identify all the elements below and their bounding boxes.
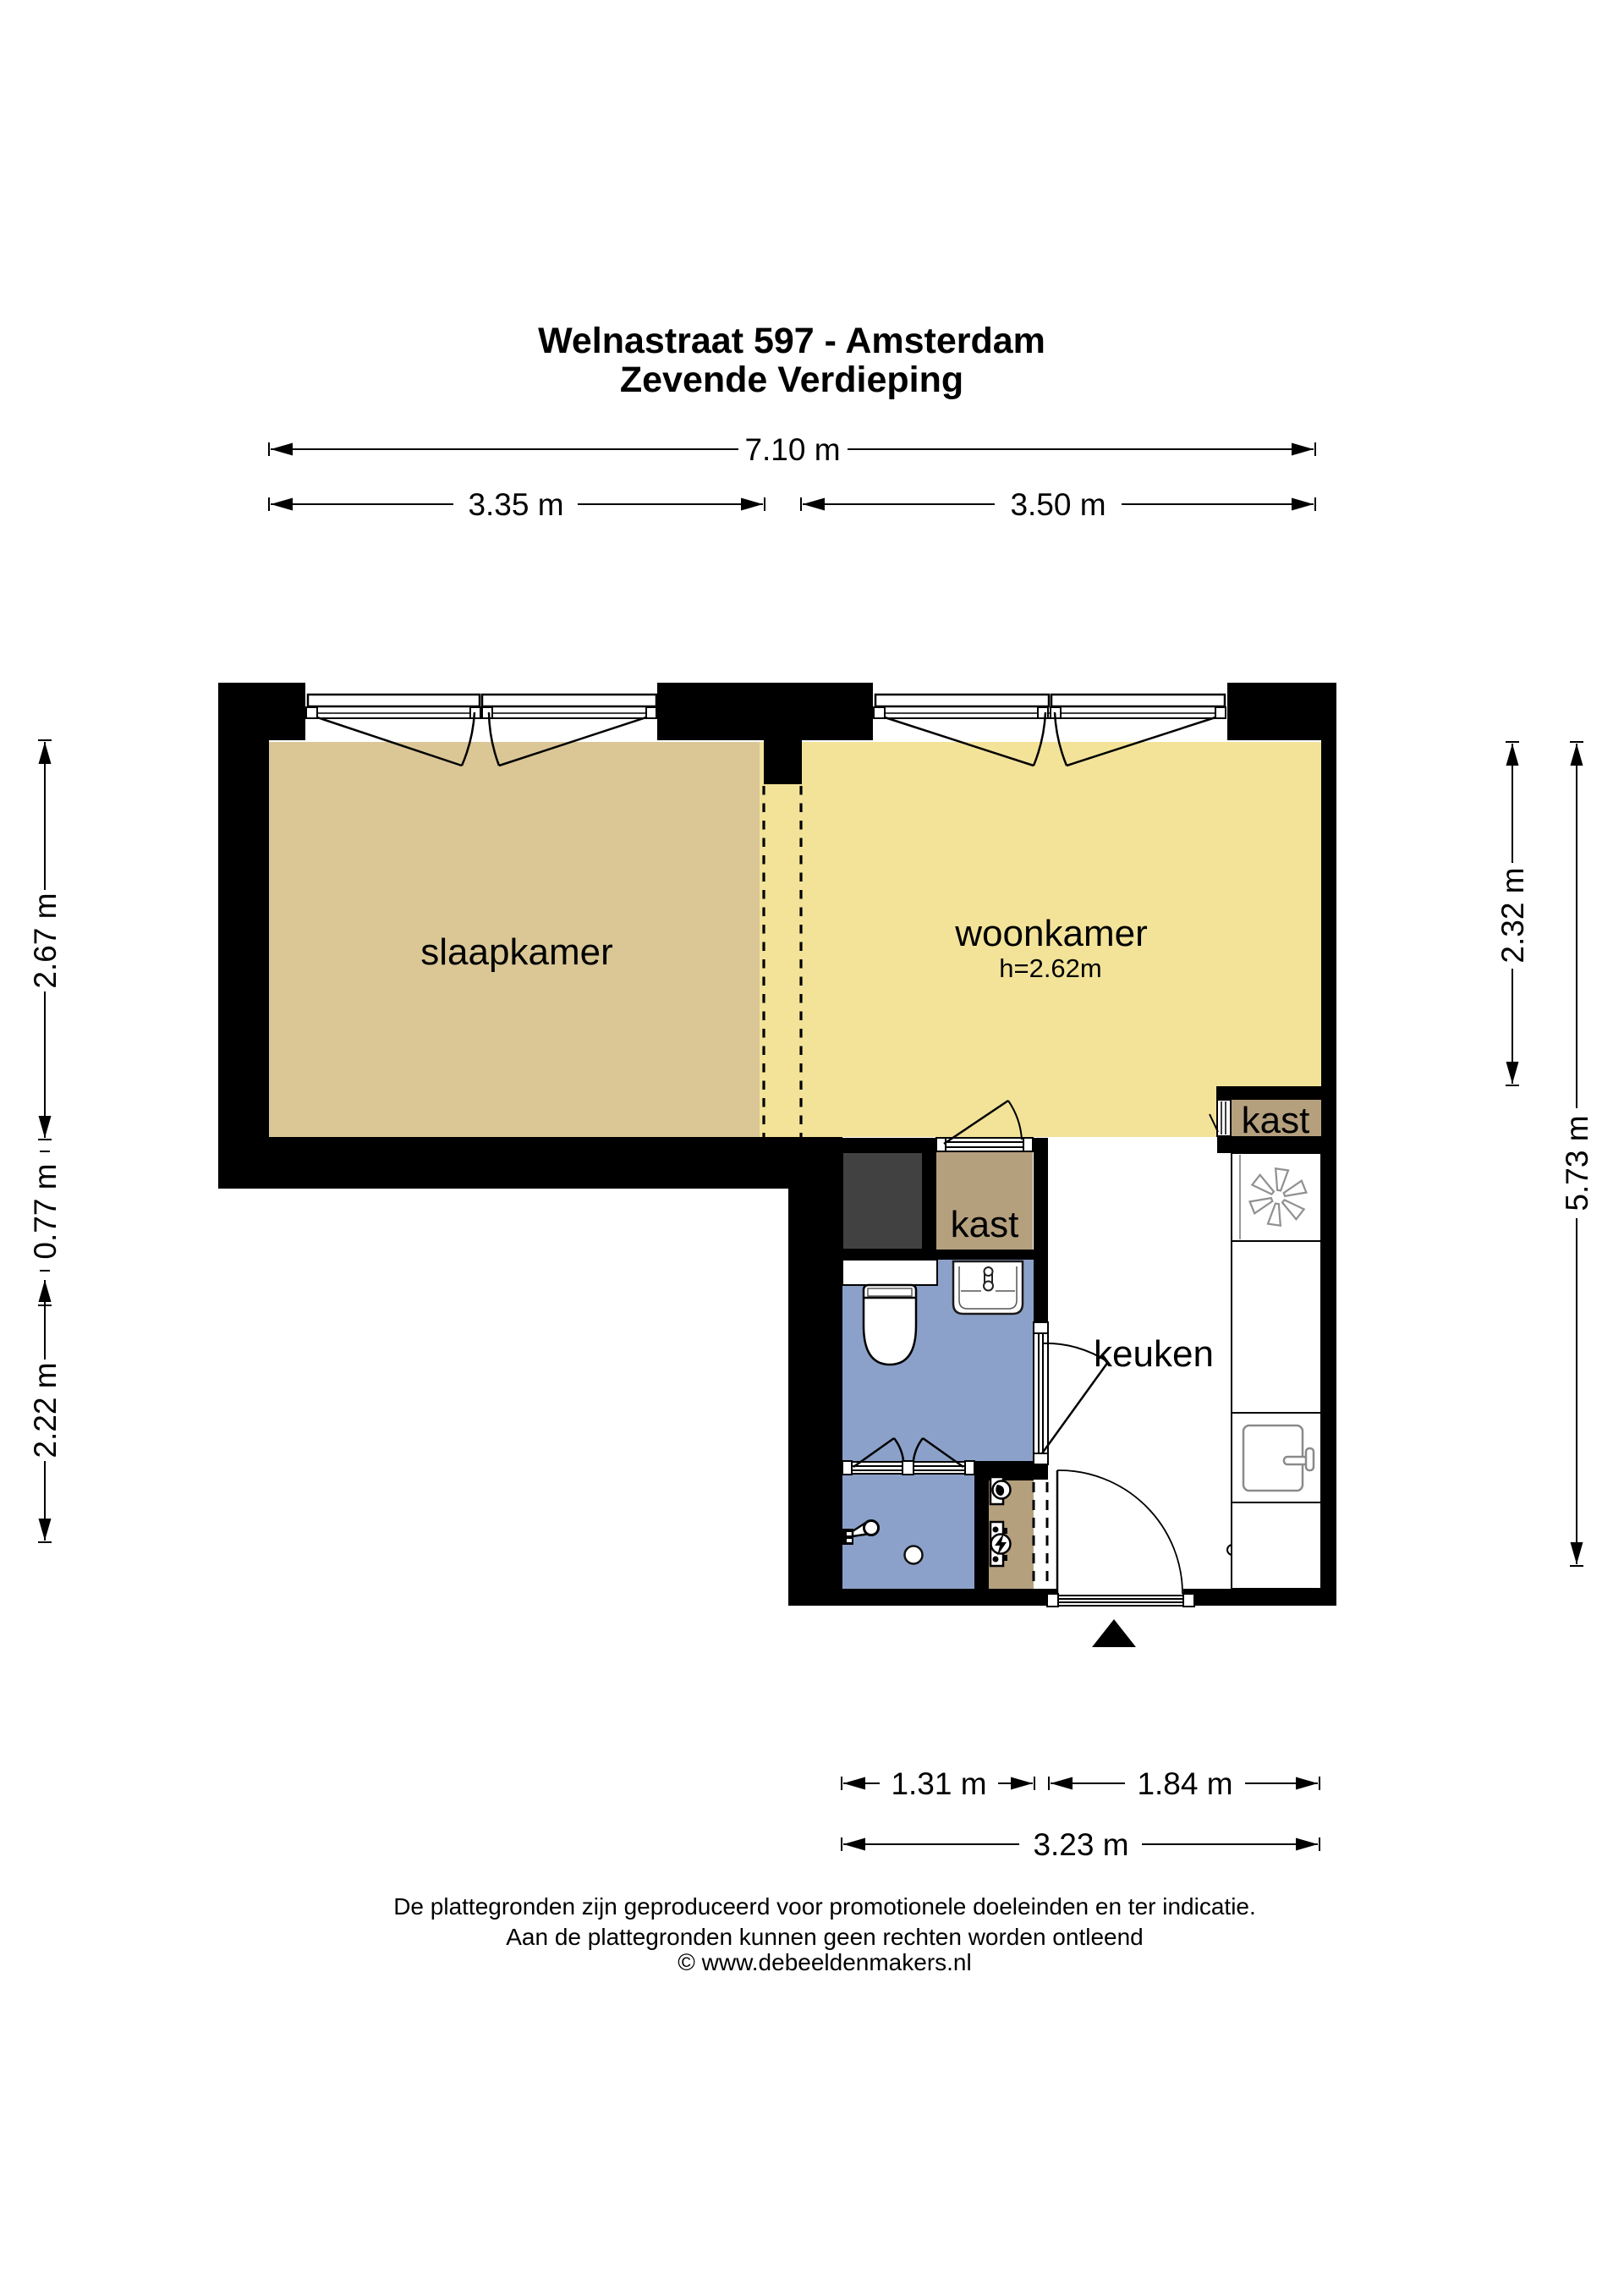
svg-text:© www.debeeldenmakers.nl: © www.debeeldenmakers.nl <box>678 1949 971 1975</box>
svg-text:Welnastraat 597 - Amsterdam: Welnastraat 597 - Amsterdam <box>538 321 1045 361</box>
svg-text:2.22 m: 2.22 m <box>28 1362 63 1458</box>
svg-text:h=2.62m: h=2.62m <box>999 953 1102 983</box>
svg-text:5.73 m: 5.73 m <box>1560 1115 1594 1211</box>
svg-text:keuken: keuken <box>1094 1333 1214 1375</box>
svg-text:kast: kast <box>951 1204 1019 1245</box>
svg-text:Aan de plattegronden kunnen ge: Aan de plattegronden kunnen geen rechten… <box>506 1924 1143 1950</box>
svg-text:1.84 m: 1.84 m <box>1137 1766 1232 1801</box>
svg-text:1.31 m: 1.31 m <box>891 1766 986 1801</box>
svg-text:kast: kast <box>1242 1100 1310 1141</box>
svg-text:2.32 m: 2.32 m <box>1495 867 1530 963</box>
svg-text:7.10 m: 7.10 m <box>744 432 840 467</box>
svg-text:woonkamer: woonkamer <box>954 913 1147 954</box>
svg-text:3.50 m: 3.50 m <box>1010 487 1106 522</box>
svg-text:3.23 m: 3.23 m <box>1033 1827 1128 1862</box>
svg-text:3.35 m: 3.35 m <box>468 487 563 522</box>
svg-text:De plattegronden zijn geproduc: De plattegronden zijn geproduceerd voor … <box>393 1893 1256 1920</box>
svg-text:2.67 m: 2.67 m <box>28 893 63 988</box>
svg-text:slaapkamer: slaapkamer <box>420 931 612 973</box>
svg-text:Zevende Verdieping: Zevende Verdieping <box>620 360 963 400</box>
svg-text:0.77 m: 0.77 m <box>28 1163 63 1259</box>
